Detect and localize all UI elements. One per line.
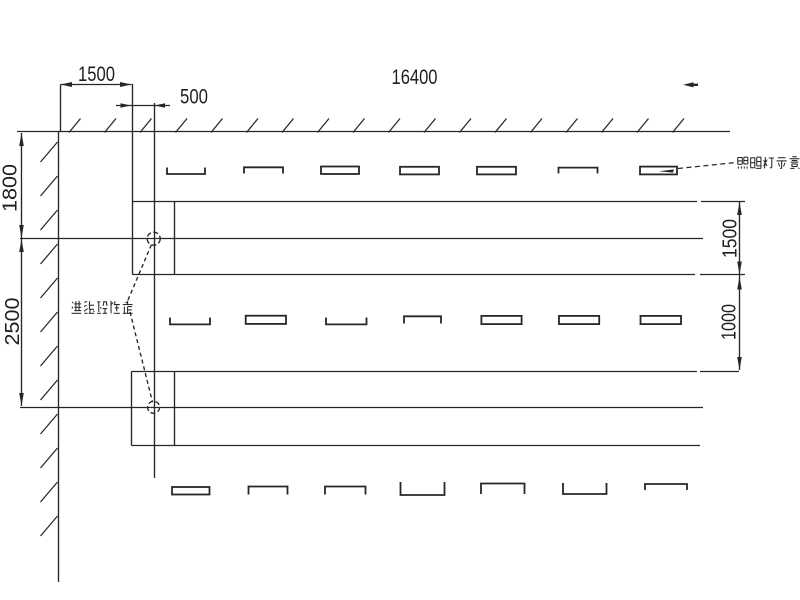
svg-text:1800: 1800 — [0, 164, 22, 212]
svg-text:500: 500 — [180, 86, 208, 109]
svg-text:1000: 1000 — [719, 304, 741, 340]
svg-text:2500: 2500 — [2, 298, 24, 346]
svg-text:1500: 1500 — [720, 219, 742, 258]
svg-text:16400: 16400 — [392, 66, 438, 89]
svg-text:1500: 1500 — [78, 63, 115, 86]
